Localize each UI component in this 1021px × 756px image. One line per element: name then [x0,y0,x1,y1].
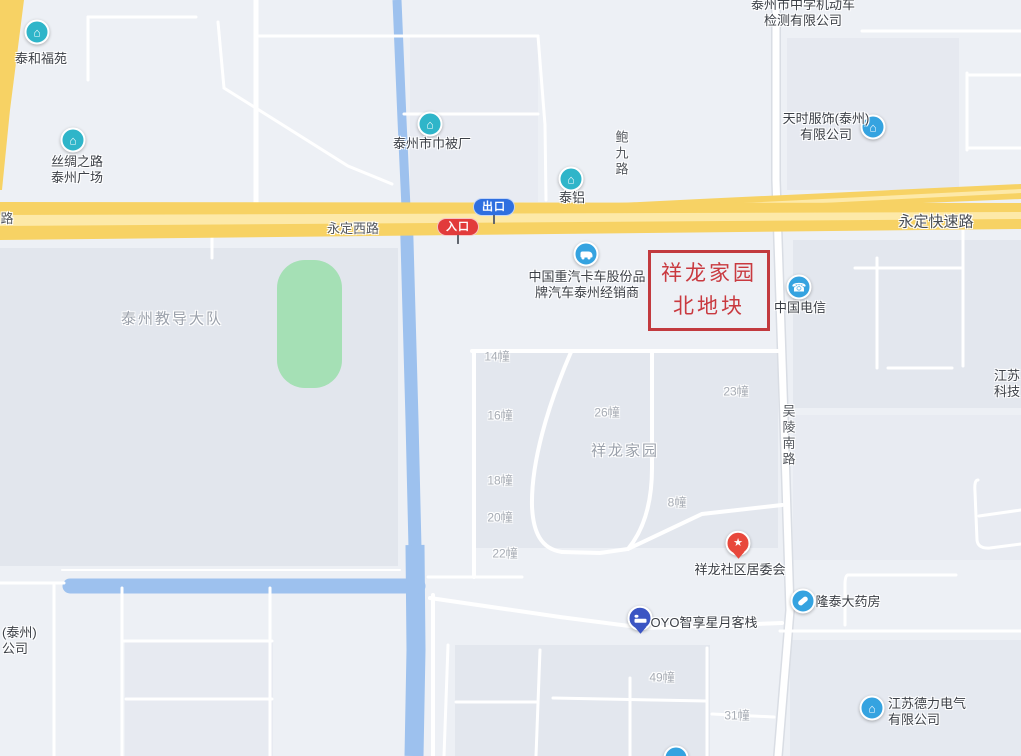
road-label-partial: 路 [0,211,13,227]
building-label-31: 31幢 [724,709,749,724]
poi-label-jiangsu-tech[interactable]: 江苏 科技 [994,368,1020,401]
building-icon: ⌂ [426,118,433,130]
building-label-8: 8幢 [668,496,687,511]
building-icon: ⌂ [69,134,76,146]
poi-label-tailv[interactable]: 泰铝 [559,190,585,206]
building-label-49: 49幢 [649,671,674,686]
entrance-badge: 入口 [437,218,479,236]
poi-label-deli-electric[interactable]: 江苏德力电气 有限公司 [888,696,966,729]
pharmacy-icon[interactable] [791,589,816,614]
capsule-icon [797,596,809,607]
bed-icon [634,618,646,622]
building-label-26: 26幢 [594,406,619,421]
poi-label-clipped-taizhou: (泰州) 公司 [2,625,37,658]
tailv-icon[interactable]: ⌂ [559,167,584,192]
road-label-yongding-west: 永定西路 [327,221,379,237]
poi-label-community-committee[interactable]: 祥龙社区居委会 [694,562,785,578]
telecom-icon[interactable]: ☎ [787,275,812,300]
building-label-16: 16幢 [487,409,512,424]
building-icon: ⌂ [33,26,40,38]
highlight-box-north-plot: 祥龙家园 北地块 [648,250,770,331]
poi-label-china-telecom[interactable]: 中国电信 [774,300,826,316]
car-icon [580,251,592,257]
poi-label-oyo-hotel[interactable]: OYO智享星月客栈 [651,615,758,631]
phone-icon: ☎ [792,281,807,293]
area-label-xianglong-jiayuan: 祥龙家园 [591,443,659,462]
residence-icon[interactable]: ⌂ [25,20,50,45]
building-label-22: 22幢 [492,547,517,562]
car-dealer-icon[interactable] [574,242,599,267]
map-viewport[interactable]: ⌂ ⌂ ⌂ ⌂ ⌂ ☎ ★ ⌂ 出口 入口 泰和福苑 丝绸之路 泰州广场 泰州市… [0,0,1021,756]
star-icon: ★ [733,538,743,549]
building-label-18: 18幢 [487,474,512,489]
poi-label-towel-factory[interactable]: 泰州市巾被厂 [393,136,471,152]
road-label-wuling-south: 吴陵南路 [782,404,795,468]
factory-icon[interactable]: ⌂ [418,112,443,137]
poi-label-longtai-pharmacy[interactable]: 隆泰大药房 [815,594,880,610]
poi-label-silkroad-plaza[interactable]: 丝绸之路 泰州广场 [51,154,103,187]
poi-label-tianshi-garments[interactable]: 天时服饰(泰州) 有限公司 [783,111,870,144]
poi-label-taihefuyuan[interactable]: 泰和福苑 [15,51,67,67]
area-label-jiaodao-brigade: 泰州教导大队 [121,311,223,330]
building-label-14: 14幢 [484,350,509,365]
building-label-20: 20幢 [487,511,512,526]
green-area [277,260,342,388]
hotel-pin-icon[interactable] [628,606,653,631]
road-label-yongding-expressway: 永定快速路 [898,214,973,233]
building-icon: ⌂ [869,121,876,133]
building-icon: ⌂ [868,702,875,714]
building-label-23: 23幢 [723,385,748,400]
poi-label-vehicle-inspection[interactable]: 泰州市中学机动车 检测有限公司 [751,0,855,29]
plaza-icon[interactable]: ⌂ [61,128,86,153]
building-icon: ⌂ [567,173,574,185]
poi-label-sinotruk-dealer[interactable]: 中国重汽卡车股份品 牌汽车泰州经销商 [528,269,645,302]
exit-badge: 出口 [473,198,515,216]
community-committee-pin-icon[interactable]: ★ [726,531,751,556]
road-label-baojiu-road: 鲍九路 [615,130,628,178]
electric-company-icon[interactable]: ⌂ [860,696,885,721]
